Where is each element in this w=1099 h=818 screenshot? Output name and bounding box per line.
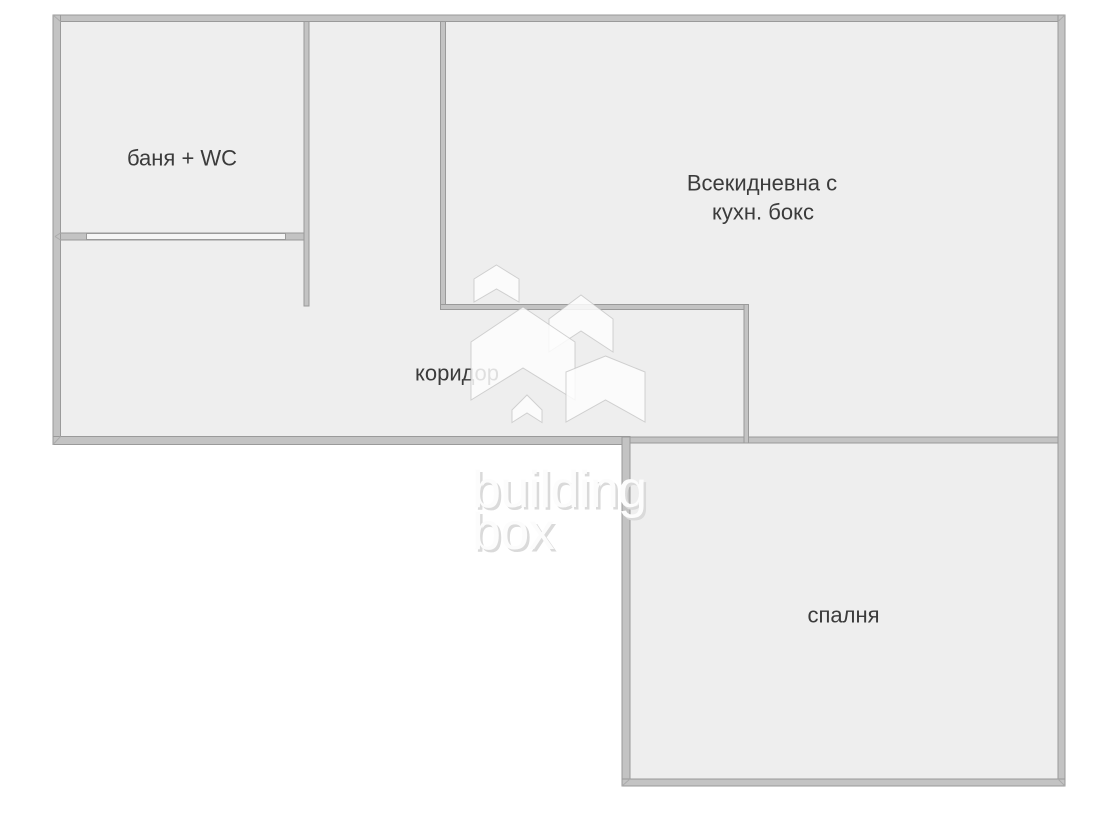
svg-text:кухн. бокс: кухн. бокс: [712, 200, 814, 225]
svg-text:спалня: спалня: [807, 603, 879, 628]
svg-text:Всекидневна с: Всекидневна с: [687, 171, 837, 196]
svg-text:box: box: [472, 503, 555, 561]
svg-text:баня + WC: баня + WC: [127, 146, 237, 171]
